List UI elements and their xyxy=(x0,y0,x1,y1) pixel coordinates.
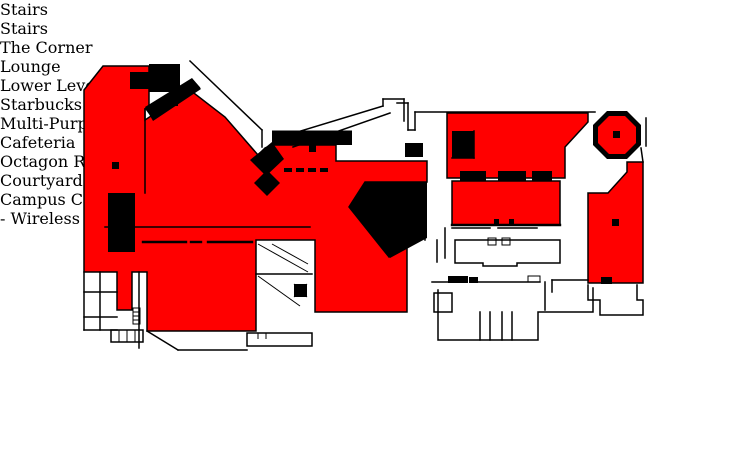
stairs-middle-marker xyxy=(309,145,316,152)
stairs-middle-leader xyxy=(313,89,399,147)
courtyard-marker xyxy=(612,219,619,226)
stairwell-hatch xyxy=(405,143,423,157)
floor-plan-drawing xyxy=(0,0,731,456)
campus-center-map: Stairs Stairs The Corner Lounge Lower Le… xyxy=(0,0,731,456)
octagon-marker xyxy=(613,131,620,138)
stairs-top-marker xyxy=(171,99,178,106)
counter xyxy=(532,171,552,181)
counter xyxy=(460,171,486,181)
corner-marker xyxy=(112,162,119,169)
small-room-box xyxy=(130,72,151,89)
wireless-serving-area xyxy=(452,181,560,225)
door-notch xyxy=(601,277,612,284)
counter xyxy=(498,171,526,181)
